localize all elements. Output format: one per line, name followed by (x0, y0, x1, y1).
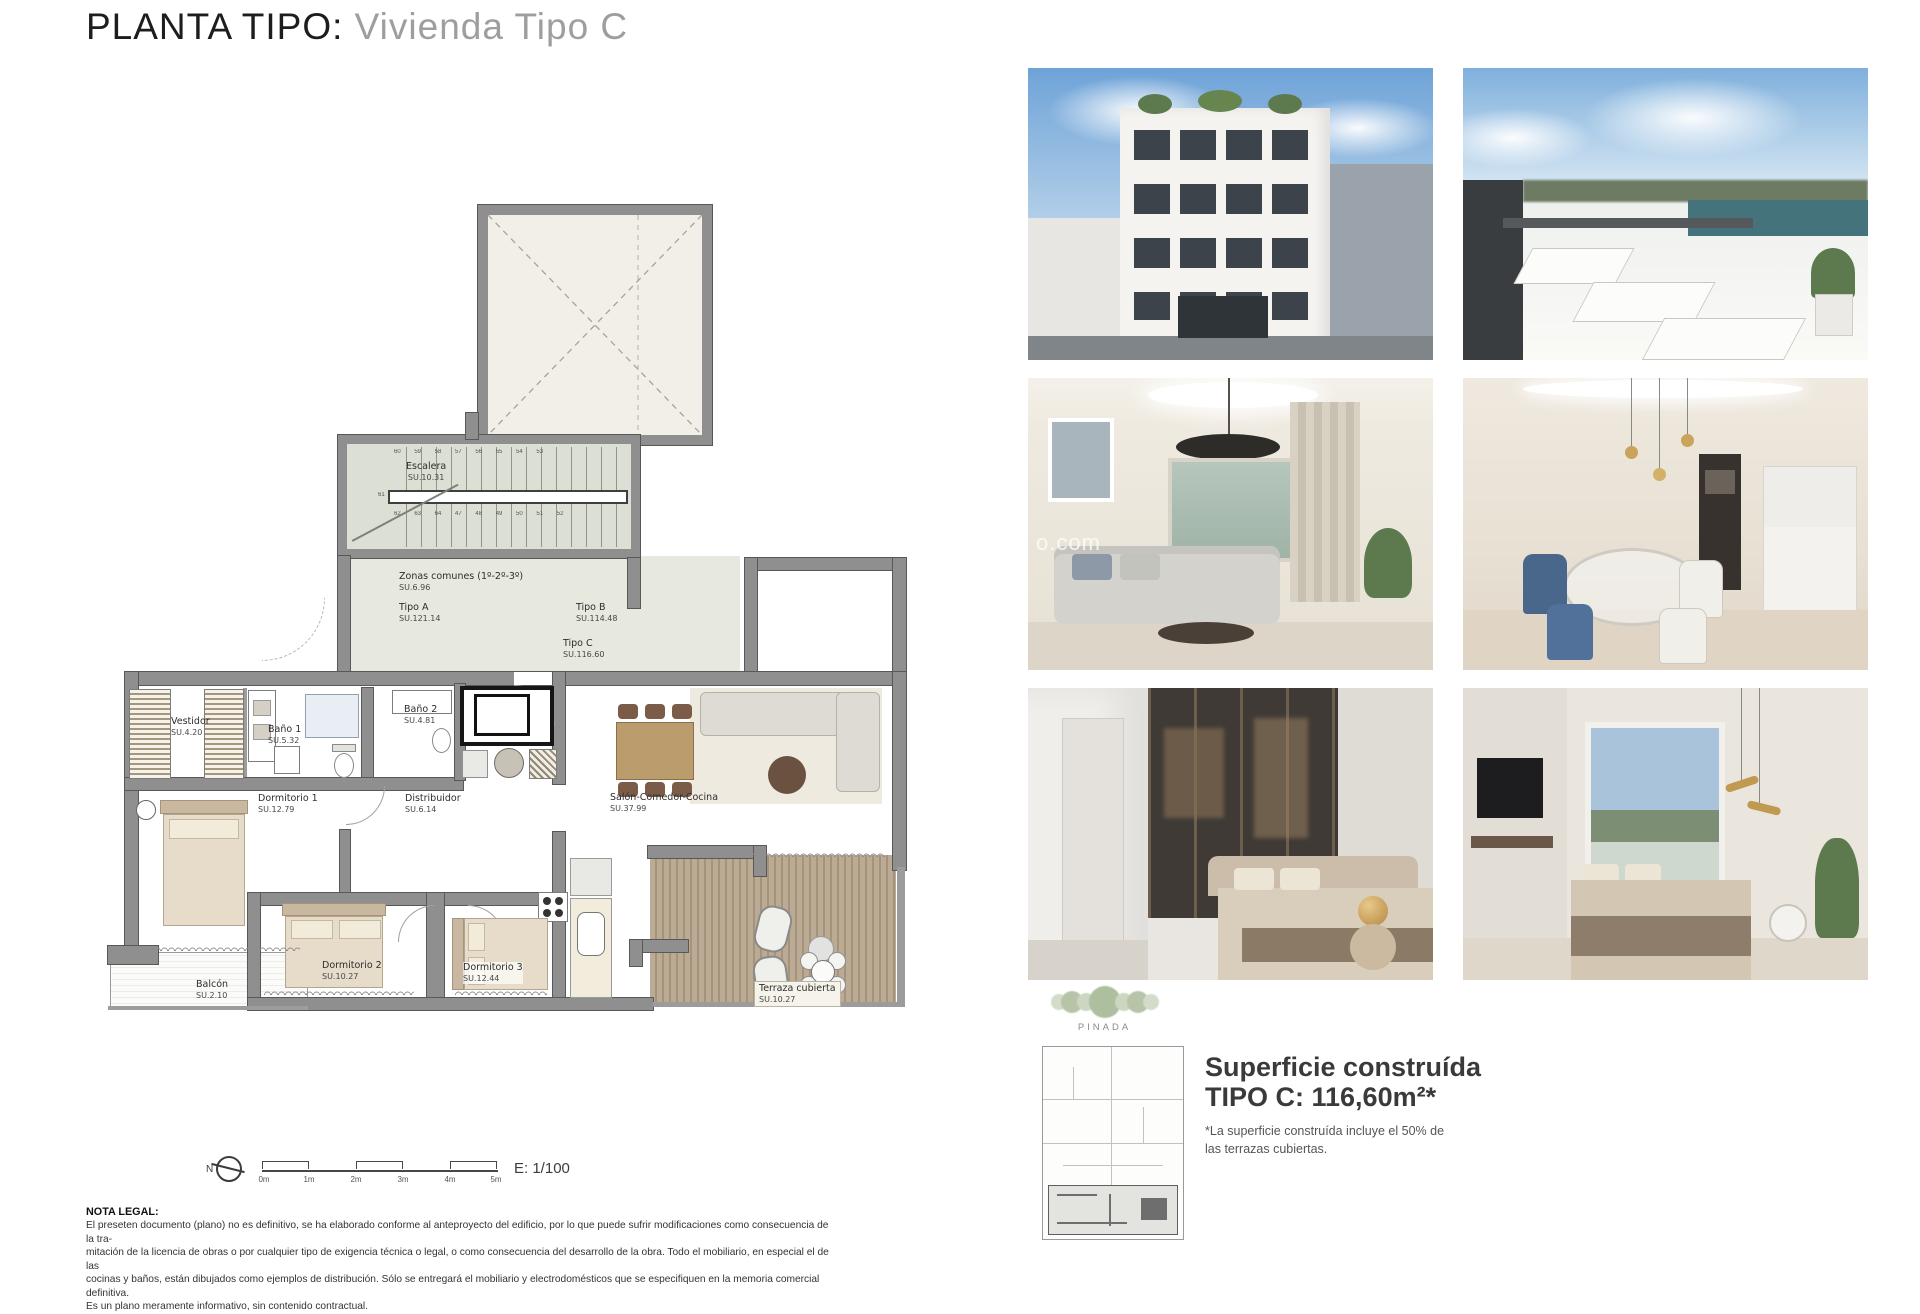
room-area: SU.4.81 (404, 716, 437, 726)
brand-name: PINADA (1022, 1022, 1187, 1033)
minimap-wall (1057, 1194, 1097, 1196)
roof-plant (1138, 94, 1172, 114)
cloud (1463, 108, 1593, 168)
room-label-tipo-c: Tipo CSU.116.60 (563, 638, 604, 660)
room-name: Vestidor (171, 716, 210, 727)
toilet-icon (432, 728, 451, 753)
room-name: Zonas comunes (1º-2º-3º) (399, 571, 523, 582)
closet-drawer (253, 700, 271, 716)
indoor-plant (1815, 838, 1859, 938)
tv-console (1471, 836, 1553, 848)
wall-segment (628, 558, 640, 608)
pendant-wire (1759, 688, 1760, 808)
minimap-highlight-tipo-c (1048, 1185, 1178, 1235)
pillow (291, 920, 333, 939)
window-curtain-symbol (140, 944, 300, 951)
blue-chair (1547, 604, 1593, 660)
sun-lounger (1642, 318, 1806, 360)
toilet-tank (332, 744, 356, 752)
page-title: PLANTA TIPO: Vivienda Tipo C (86, 6, 628, 48)
room-name: Baño 2 (404, 704, 437, 715)
curtains (1290, 402, 1360, 602)
pendant-lamp (1176, 434, 1280, 460)
burner (543, 909, 551, 917)
window-curtain-symbol (455, 988, 547, 995)
door-arc-tipo-a (262, 598, 325, 661)
room-label-dormitorio2: Dormitorio 2SU.10.27 (322, 960, 382, 982)
pendant-bulb (1625, 446, 1638, 459)
sun-lounger (1513, 248, 1634, 284)
stair-number-mid: 61 (378, 492, 390, 498)
glass-railing (1503, 218, 1753, 228)
room-area: SU.116.60 (563, 650, 604, 660)
minimap-line (1043, 1099, 1183, 1100)
built-area-footnote: *La superficie construída incluye el 50%… (1205, 1122, 1444, 1158)
scale-tick: 3m (397, 1175, 408, 1184)
door (1062, 718, 1124, 960)
north-indicator: N (206, 1156, 242, 1182)
room-label-bano2: Baño 2SU.4.81 (404, 704, 437, 726)
room-name: Dormitorio 2 (322, 960, 382, 971)
door-arc-dormitorio2 (398, 905, 435, 942)
photo-bedroom-dressing (1028, 688, 1433, 980)
minimap-wall (1141, 1198, 1167, 1220)
minimap-line (1063, 1165, 1163, 1166)
chair-icon (645, 704, 665, 719)
brochure-page: { "page": { "title": "PLANTA TIPO:", "su… (0, 0, 1920, 1280)
stair-numbers-bottom: 62 63 64 47 48 49 50 51 52 (394, 511, 628, 517)
lit-shelves (1164, 728, 1224, 818)
pendant-wire (1659, 378, 1660, 470)
gold-pendant-bar (1747, 800, 1782, 816)
minimap-wall (1057, 1222, 1127, 1224)
wall-segment (745, 558, 905, 570)
pillow (169, 819, 239, 839)
void-cross-lines (488, 215, 702, 435)
bed-headboard (282, 903, 386, 916)
legal-note: NOTA LEGAL: El preseten documento (plano… (86, 1205, 834, 1314)
gold-table-lamp (1358, 896, 1388, 926)
entrance-door-gap (514, 672, 556, 685)
shelf-unit (530, 750, 556, 778)
room-name: Terraza cubierta (759, 983, 836, 994)
elevator-car (474, 694, 530, 736)
wall-bottom (248, 998, 653, 1010)
scale-baseline (262, 1170, 498, 1172)
room-label-tipo-a: Tipo ASU.121.14 (399, 602, 440, 624)
legal-line: cocinas y baños, están dibujados como ej… (86, 1273, 834, 1300)
scale-tick: 4m (444, 1175, 455, 1184)
room-label-balcon: BalcónSU.2.10 (196, 979, 228, 1001)
white-chair (1659, 608, 1707, 664)
room-label-dormitorio3: Dormitorio 3SU.12.44 (463, 962, 523, 984)
room-area: SU.121.14 (399, 614, 440, 624)
photo-bedroom-window (1463, 688, 1868, 980)
planter-pot (1815, 294, 1853, 336)
gold-pendant-bar (1725, 775, 1760, 793)
sun-lounger (1572, 282, 1715, 322)
room-area: SU.6.96 (399, 583, 523, 593)
room-area: SU.37.99 (610, 804, 718, 814)
room-area: SU.10.31 (406, 473, 446, 483)
column-detail (136, 800, 156, 820)
room-label-zonas-comunes: Zonas comunes (1º-2º-3º)SU.6.96 (399, 571, 523, 593)
built-area-title: Superficie construída TIPO C: 116,60m²* (1205, 1052, 1481, 1112)
bed-blanket (1571, 916, 1751, 956)
potted-plant (1811, 248, 1855, 298)
brand-block: PINADA (1022, 984, 1187, 1033)
room-area: SU.114.48 (576, 614, 617, 624)
room-name: Tipo B (576, 602, 606, 613)
hanging-clothes (1254, 718, 1308, 838)
room-label-distribuidor: DistribuidorSU.6.14 (405, 793, 461, 815)
scale-ratio-label: E: 1/100 (514, 1160, 570, 1177)
wall-segment (108, 1006, 308, 1010)
room-area: SU.4.20 (171, 728, 210, 738)
room-name: Tipo C (563, 638, 593, 649)
photo-watermark: o.com (1036, 530, 1101, 556)
burner (555, 897, 563, 905)
minimap-line (1143, 1107, 1144, 1143)
scale-tick: 0m (258, 1175, 269, 1184)
room-name: Dormitorio 1 (258, 793, 318, 804)
wall-tv (1477, 758, 1543, 818)
pendant-wire (1687, 378, 1688, 436)
treeline (1523, 180, 1868, 202)
pendant-bulb (1653, 468, 1666, 481)
page-title-main: PLANTA TIPO: (86, 6, 343, 47)
legal-heading: NOTA LEGAL: (86, 1206, 159, 1218)
built-area-line1: Superficie construída (1205, 1052, 1481, 1082)
built-area-footnote-line2: las terrazas cubiertas. (1205, 1140, 1444, 1158)
floor (1028, 940, 1148, 980)
chair-icon (672, 704, 692, 719)
minimap-line (1043, 1143, 1183, 1144)
built-area-line2: TIPO C: 116,60m²* (1205, 1082, 1481, 1112)
sofa-pillow (1072, 554, 1112, 580)
coffee-table-icon (768, 756, 806, 794)
legal-line: mitación de la licencia de obras o por c… (86, 1246, 834, 1273)
room-label-dormitorio1: Dormitorio 1SU.12.79 (258, 793, 318, 815)
pendant-wire (1631, 378, 1632, 448)
street (1028, 336, 1433, 360)
cloud (1583, 78, 1803, 158)
washer-icon (494, 748, 524, 778)
left-wall (1463, 688, 1567, 980)
pendant-wire (1741, 688, 1742, 784)
sofa-chaise (836, 692, 880, 792)
scale-bar: 0m 1m 2m 3m 4m 5m (262, 1160, 498, 1176)
room-area: SU.10.27 (322, 972, 382, 982)
door-arc-dormitorio1 (346, 786, 385, 825)
room-label-escalera: EscaleraSU.10.31 (406, 461, 446, 483)
room-area: SU.12.44 (463, 974, 523, 984)
pillow (468, 923, 485, 951)
room-area: SU.6.14 (405, 805, 461, 815)
stair-numbers-top: 60 59 58 57 56 55 54 53 (394, 449, 628, 455)
chair-icon (618, 704, 638, 719)
bathroom-vanity (274, 746, 300, 774)
pillow (1280, 868, 1320, 890)
wall-segment (745, 558, 757, 672)
room-area: SU.12.79 (258, 805, 318, 815)
bed-throw (1242, 928, 1433, 962)
coffee-table (1158, 622, 1254, 644)
wall-segment (125, 778, 463, 790)
indoor-plant (1364, 528, 1412, 598)
room-area: SU.5.32 (268, 736, 301, 746)
pillow (1234, 868, 1274, 890)
photo-building-exterior (1028, 68, 1433, 360)
toilet-icon (334, 753, 354, 778)
bed-headboard (160, 800, 248, 814)
room-name: Dormitorio 3 (463, 962, 523, 973)
wall-segment (897, 867, 905, 1005)
ceiling-cove-light (1523, 380, 1803, 398)
wall-segment (466, 413, 478, 439)
pendant-cord (1228, 378, 1230, 440)
bedside-drum-table (1350, 924, 1396, 970)
round-side-table (1769, 904, 1807, 942)
room-label-tipo-b: Tipo BSU.114.48 (576, 602, 617, 624)
building-entrance (1178, 296, 1268, 338)
window-curtain-symbol (264, 988, 414, 995)
room-label-salon: Salón-Comedor-CocinaSU.37.99 (610, 792, 718, 814)
shower-icon (305, 694, 359, 738)
wall-art (1048, 418, 1114, 502)
wall-segment (340, 830, 350, 900)
legal-line: Es un plano meramente informativo, sin c… (86, 1300, 834, 1313)
sink-icon (577, 912, 605, 956)
scale-tick: 2m (350, 1175, 361, 1184)
utility-appliance (462, 750, 488, 778)
building-mullions (1134, 130, 1316, 320)
burner (543, 897, 551, 905)
roof-plant (1198, 90, 1242, 112)
scale-segment (262, 1161, 309, 1169)
room-label-terraza: Terraza cubiertaSU.10.27 (754, 981, 841, 1007)
wall-segment (362, 688, 373, 782)
room-area: SU.10.27 (759, 995, 836, 1005)
minimap-line (1073, 1067, 1074, 1099)
burner (555, 909, 563, 917)
wall-segment (338, 556, 350, 672)
photo-rooftop-terrace (1463, 68, 1868, 360)
room-name: Escalera (406, 461, 446, 472)
scale-tick: 5m (490, 1175, 501, 1184)
north-compass-icon (216, 1156, 242, 1182)
room-area: SU.2.10 (196, 991, 228, 1001)
ornament-dot (1143, 994, 1159, 1010)
fridge-icon (570, 858, 612, 896)
roof-plant (1268, 94, 1302, 114)
built-area-footnote-line1: *La superficie construída incluye el 50%… (1205, 1122, 1444, 1140)
room-label-bano1: Baño 1SU.5.32 (268, 724, 301, 746)
room-name: Balcón (196, 979, 228, 990)
pendant-bulb (1681, 434, 1694, 447)
photo-dining-kitchen (1463, 378, 1868, 670)
neighbor-building-right (1328, 164, 1433, 360)
wardrobe-icon (130, 690, 170, 778)
dining-table-icon (616, 722, 694, 780)
key-plan-minimap (1042, 1046, 1184, 1240)
wardrobe-icon (205, 690, 243, 778)
scale-segment (450, 1161, 497, 1169)
room-name: Distribuidor (405, 793, 461, 804)
scale-tick: 1m (303, 1175, 314, 1184)
wall-right (893, 672, 906, 870)
wall-segment (243, 688, 247, 780)
wall-segment (630, 940, 642, 966)
pinada-ornament-icon (1022, 984, 1187, 1020)
room-name: Baño 1 (268, 724, 301, 735)
room-name: Tipo A (399, 602, 429, 613)
scale-segment (356, 1161, 403, 1169)
room-label-vestidor: VestidorSU.4.20 (171, 716, 210, 738)
stairwell-void-room (478, 205, 712, 445)
page-title-subtitle: Vivienda Tipo C (355, 6, 628, 47)
sofa-pillow (1120, 554, 1160, 580)
wall-segment (893, 558, 906, 672)
legal-line: El preseten documento (plano) no es defi… (86, 1219, 834, 1246)
window-curtain-symbol (695, 850, 885, 857)
oven-door (1705, 470, 1735, 494)
pillow (339, 920, 381, 939)
room-name: Salón-Comedor-Cocina (610, 792, 718, 803)
shower-column (1463, 180, 1523, 360)
photo-living-room: o.com (1028, 378, 1433, 670)
